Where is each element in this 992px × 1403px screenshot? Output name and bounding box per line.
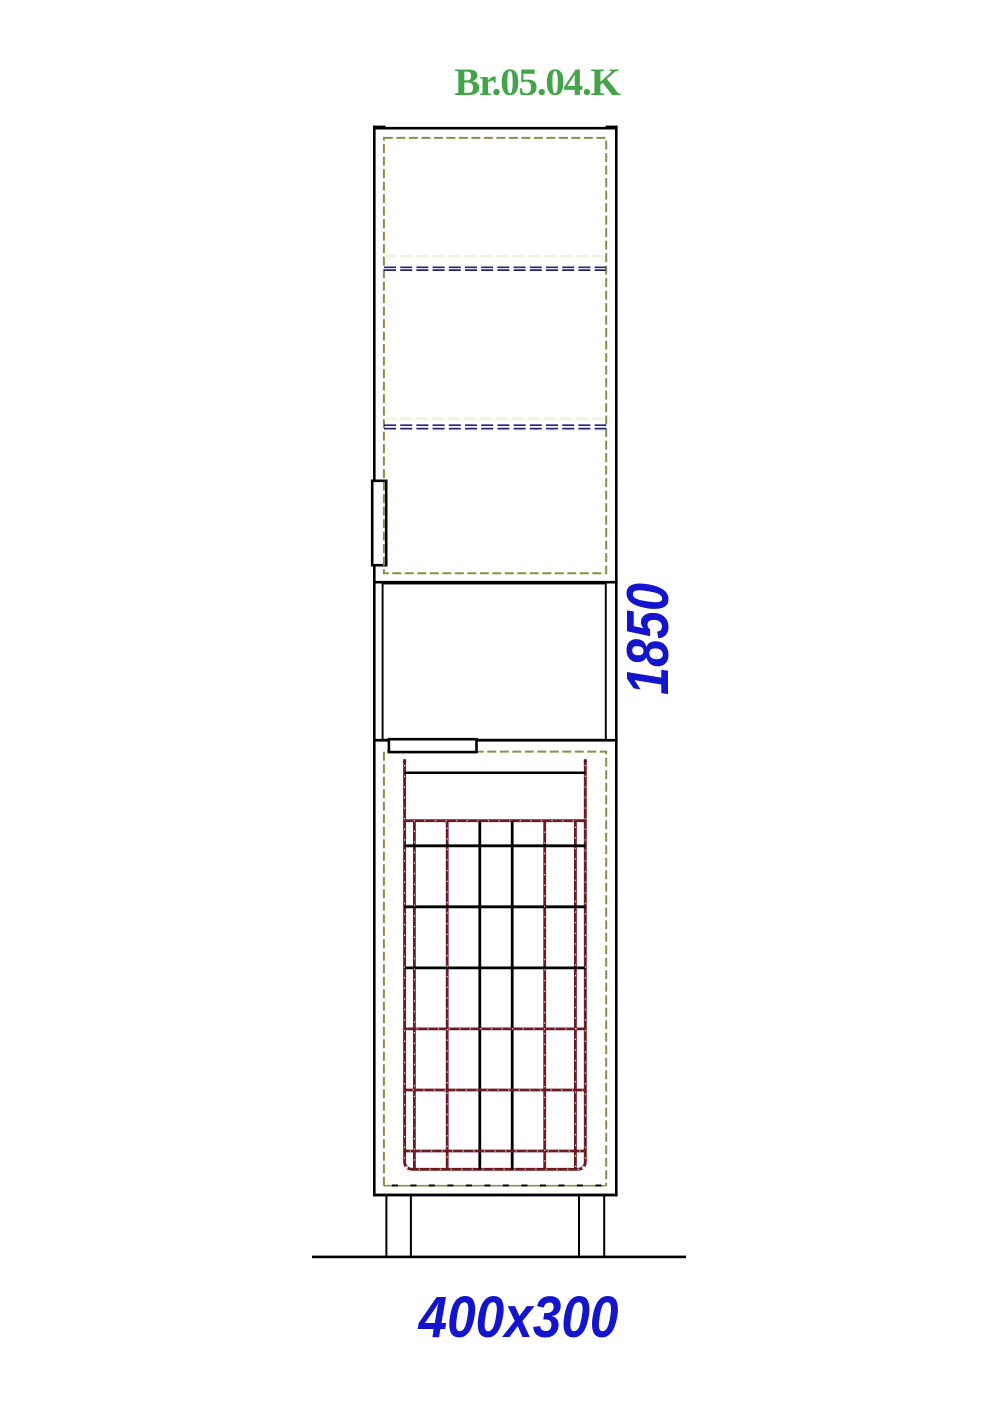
svg-text:Br.05.04.K: Br.05.04.K <box>454 61 621 104</box>
svg-text:400x300: 400x300 <box>418 1285 619 1350</box>
svg-text:1850: 1850 <box>615 583 681 695</box>
